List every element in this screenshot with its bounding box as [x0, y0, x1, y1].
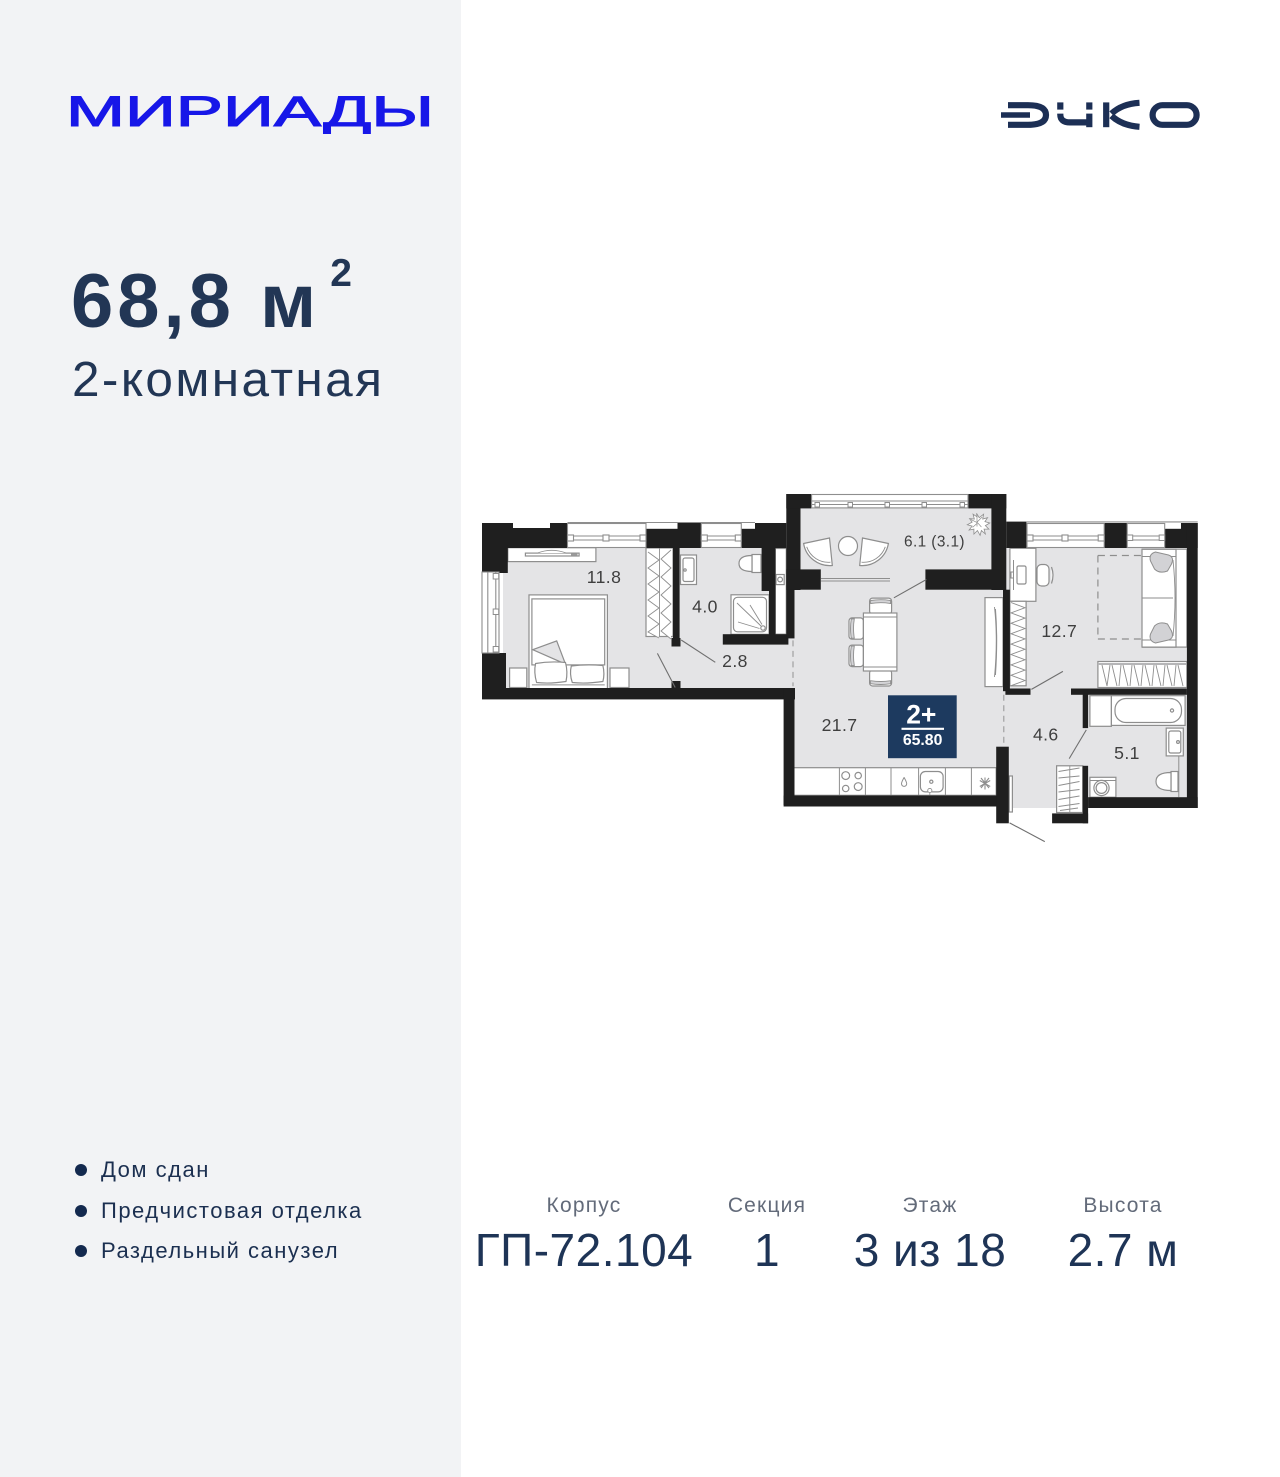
svg-text:2+: 2+ — [906, 700, 936, 730]
svg-text:5.1: 5.1 — [1114, 743, 1140, 763]
svg-text:65.80: 65.80 — [903, 732, 943, 749]
svg-text:12.7: 12.7 — [1041, 621, 1077, 641]
svg-text:21.7: 21.7 — [822, 715, 858, 735]
svg-text:4.6: 4.6 — [1033, 725, 1059, 745]
svg-text:4.0: 4.0 — [692, 597, 718, 617]
svg-text:6.1 (3.1): 6.1 (3.1) — [904, 534, 965, 551]
svg-text:2.8: 2.8 — [722, 651, 748, 671]
svg-text:11.8: 11.8 — [587, 567, 622, 587]
